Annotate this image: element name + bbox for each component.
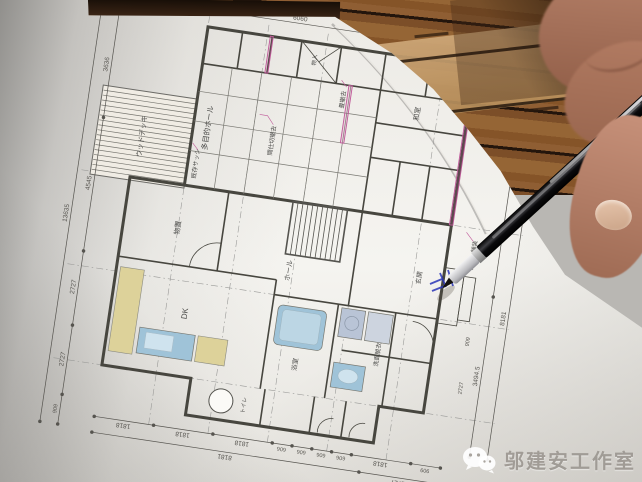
photo-scene: 6060 909 2727 5454 3636 4545 2727 2727 9… [0,0,642,482]
wechat-icon [462,446,496,474]
watermark: 邬建安工作室 [462,445,636,474]
watermark-text: 邬建安工作室 [504,445,636,474]
pen-ink-scribble [0,0,642,482]
